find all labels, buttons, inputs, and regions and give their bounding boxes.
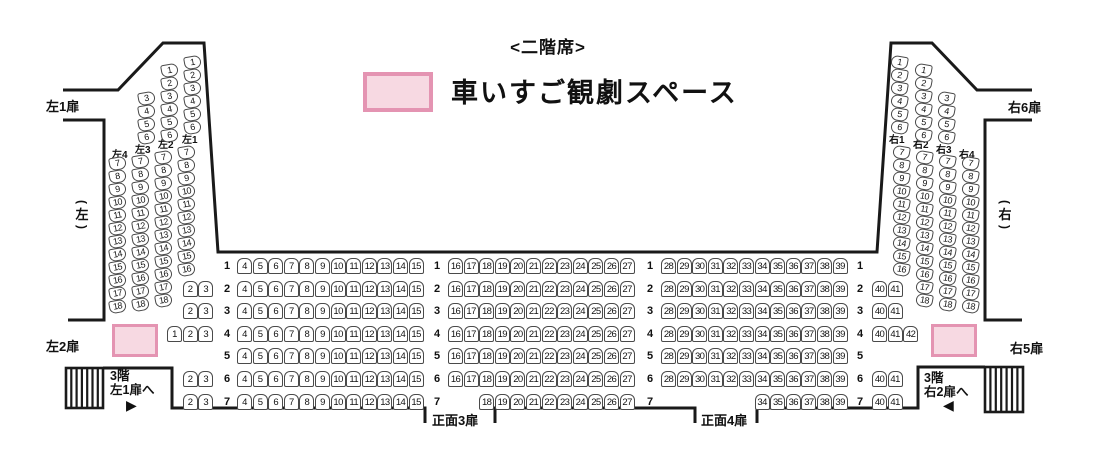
seat: 22	[542, 326, 557, 342]
seat: 9	[315, 348, 330, 364]
seat: 19	[495, 303, 510, 319]
seat: 8	[299, 258, 314, 274]
seat: 14	[393, 371, 408, 387]
seat: 34	[755, 394, 770, 410]
seat: 40	[872, 281, 887, 297]
seat: 41	[888, 326, 903, 342]
row-number: 3	[430, 305, 444, 317]
seat: 26	[604, 371, 619, 387]
seat: 33	[739, 258, 754, 274]
seat: 18	[479, 371, 494, 387]
row-number: 7	[853, 396, 867, 408]
seat: 21	[526, 281, 541, 297]
seat: 34	[755, 371, 770, 387]
seat: 13	[377, 348, 392, 364]
seat: 14	[393, 394, 408, 410]
seat: 11	[346, 258, 361, 274]
seat: 15	[409, 281, 424, 297]
seat: 34	[755, 348, 770, 364]
door-label-left1: 左1扉	[46, 96, 79, 115]
row-number: 6	[430, 373, 444, 385]
seat: 23	[557, 303, 572, 319]
seat: 37	[801, 394, 816, 410]
seat: 33	[739, 303, 754, 319]
row-number: 5	[220, 350, 234, 362]
seat: 16	[448, 371, 463, 387]
seat: 9	[315, 281, 330, 297]
seat: 22	[542, 258, 557, 274]
seat: 8	[299, 371, 314, 387]
seat: 28	[661, 303, 676, 319]
seat: 11	[346, 281, 361, 297]
seat: 29	[677, 326, 692, 342]
seat: 15	[409, 258, 424, 274]
seat: 17	[464, 326, 479, 342]
seat: 3	[198, 394, 213, 410]
seat: 27	[620, 371, 635, 387]
seat: 27	[620, 326, 635, 342]
seat: 7	[284, 326, 299, 342]
seat: 35	[770, 348, 785, 364]
seat: 6	[268, 326, 283, 342]
seat: 13	[377, 281, 392, 297]
door-label-front3: 正面3扉	[432, 410, 478, 429]
seat: 25	[588, 394, 603, 410]
seat: 37	[801, 258, 816, 274]
side-label-right: (右)	[997, 196, 1013, 233]
seat: 13	[377, 303, 392, 319]
seat: 39	[833, 371, 848, 387]
seat: 5	[253, 394, 268, 410]
seat: 16	[448, 258, 463, 274]
seat: 38	[817, 258, 832, 274]
seat: 36	[786, 326, 801, 342]
seat: 9	[315, 326, 330, 342]
seat: 6	[268, 281, 283, 297]
seat: 18	[479, 348, 494, 364]
seat: 11	[346, 303, 361, 319]
seat: 9	[315, 371, 330, 387]
seat: 7	[284, 281, 299, 297]
seat: 24	[573, 258, 588, 274]
seat: 8	[299, 303, 314, 319]
seat: 39	[833, 258, 848, 274]
seat: 40	[872, 371, 887, 387]
seat: 14	[393, 281, 408, 297]
row-number: 4	[643, 328, 657, 340]
seat: 13	[377, 394, 392, 410]
legend-wheelchair-swatch	[363, 72, 433, 112]
seat: 12	[362, 394, 377, 410]
seat: 19	[495, 281, 510, 297]
row-number: 4	[220, 328, 234, 340]
seat: 36	[786, 281, 801, 297]
seat: 40	[872, 326, 887, 342]
seat: 30	[692, 348, 707, 364]
door-label-right6: 右6扉	[1008, 97, 1041, 116]
seat: 33	[739, 326, 754, 342]
seat: 38	[817, 371, 832, 387]
row-number: 4	[430, 328, 444, 340]
seat: 23	[557, 326, 572, 342]
seat: 6	[268, 371, 283, 387]
stairs-right-icon	[985, 367, 1023, 412]
seating-chart: <二階席> 車いすご観劇スペース 左1扉 左2扉 右6扉 右5扉 正面3扉 正面…	[0, 0, 1100, 463]
seat: 37	[801, 348, 816, 364]
seat: 16	[448, 326, 463, 342]
seat: 25	[588, 326, 603, 342]
seat: 4	[237, 394, 252, 410]
seat: 26	[604, 326, 619, 342]
seat: 19	[495, 348, 510, 364]
door-label-left2: 左2扉	[46, 336, 79, 355]
row-number: 2	[853, 283, 867, 295]
seat: 20	[510, 303, 525, 319]
row-number: 6	[643, 373, 657, 385]
arrow-right-icon: ▶	[126, 398, 137, 412]
seat: 15	[409, 371, 424, 387]
seat: 35	[770, 303, 785, 319]
seat: 34	[755, 326, 770, 342]
seat: 21	[526, 303, 541, 319]
seat: 25	[588, 281, 603, 297]
seat: 27	[620, 281, 635, 297]
seat: 36	[786, 394, 801, 410]
seat: 12	[362, 258, 377, 274]
seat: 33	[739, 348, 754, 364]
seat: 10	[331, 326, 346, 342]
seat: 8	[299, 394, 314, 410]
seat: 29	[677, 371, 692, 387]
seat: 14	[393, 326, 408, 342]
seat: 38	[817, 303, 832, 319]
seat: 21	[526, 394, 541, 410]
seat: 33	[739, 281, 754, 297]
arrow-left-icon: ◀	[943, 398, 954, 412]
row-number: 7	[430, 396, 444, 408]
seat: 8	[299, 326, 314, 342]
seat: 12	[362, 303, 377, 319]
seat: 7	[284, 258, 299, 274]
row-number: 3	[853, 305, 867, 317]
seat: 26	[604, 303, 619, 319]
seat: 18	[479, 326, 494, 342]
seat: 3	[198, 281, 213, 297]
seat: 22	[542, 371, 557, 387]
row-number: 1	[853, 260, 867, 272]
seat: 8	[299, 348, 314, 364]
seat: 39	[833, 394, 848, 410]
seat: 17	[464, 303, 479, 319]
seat: 39	[833, 303, 848, 319]
seat: 24	[573, 303, 588, 319]
seat: 15	[409, 348, 424, 364]
seat: 14	[393, 348, 408, 364]
seat: 29	[677, 258, 692, 274]
seat: 31	[708, 326, 723, 342]
seat: 24	[573, 281, 588, 297]
seat: 10	[331, 394, 346, 410]
seat: 12	[362, 371, 377, 387]
seat: 14	[393, 258, 408, 274]
seat: 18	[479, 394, 494, 410]
seat: 34	[755, 258, 770, 274]
seat: 5	[253, 303, 268, 319]
seat: 19	[495, 371, 510, 387]
seat: 5	[253, 258, 268, 274]
seat: 14	[393, 303, 408, 319]
seat: 26	[604, 394, 619, 410]
side-label-left: (左)	[74, 196, 90, 233]
seat: 16	[448, 281, 463, 297]
seat: 7	[284, 348, 299, 364]
row-number: 4	[853, 328, 867, 340]
seat: 31	[708, 258, 723, 274]
seat: 10	[331, 371, 346, 387]
seat: 22	[542, 281, 557, 297]
seat: 41	[888, 281, 903, 297]
row-number: 6	[220, 373, 234, 385]
seat: 28	[661, 326, 676, 342]
seat: 30	[692, 371, 707, 387]
seat: 7	[284, 394, 299, 410]
row-number: 5	[643, 350, 657, 362]
seat: 2	[183, 281, 198, 297]
seat: 41	[888, 303, 903, 319]
seat: 34	[755, 303, 770, 319]
seat: 25	[588, 303, 603, 319]
seat: 35	[770, 394, 785, 410]
seat: 37	[801, 371, 816, 387]
seat: 26	[604, 348, 619, 364]
seat: 25	[588, 258, 603, 274]
seat: 29	[677, 303, 692, 319]
seat: 34	[755, 281, 770, 297]
seat: 41	[888, 394, 903, 410]
seat: 39	[833, 281, 848, 297]
seat: 7	[284, 371, 299, 387]
seat: 20	[510, 281, 525, 297]
seat: 9	[315, 303, 330, 319]
seat: 22	[542, 303, 557, 319]
row-number: 3	[220, 305, 234, 317]
seat: 26	[604, 258, 619, 274]
seat: 32	[723, 326, 738, 342]
seat: 9	[315, 258, 330, 274]
seat: 31	[708, 371, 723, 387]
seat: 12	[362, 281, 377, 297]
seat: 6	[268, 258, 283, 274]
seat: 20	[510, 394, 525, 410]
seat: 36	[786, 348, 801, 364]
seat: 16	[448, 348, 463, 364]
seat: 32	[723, 371, 738, 387]
seat: 17	[464, 348, 479, 364]
seat: 10	[331, 281, 346, 297]
seat: 24	[573, 371, 588, 387]
seat: 26	[604, 281, 619, 297]
seat: 35	[770, 281, 785, 297]
stairs-left-text: 3階 左1扉へ	[110, 369, 154, 398]
seat: 5	[253, 326, 268, 342]
seat: 23	[557, 394, 572, 410]
seat: 30	[692, 281, 707, 297]
seat: 42	[903, 326, 918, 342]
seat: 28	[661, 371, 676, 387]
seat: 4	[237, 348, 252, 364]
stairs-right-text: 3階 右2扉へ	[924, 371, 968, 400]
seat: 31	[708, 303, 723, 319]
seat: 4	[237, 303, 252, 319]
seat: 24	[573, 326, 588, 342]
seat: 31	[708, 281, 723, 297]
seat: 3	[198, 326, 213, 342]
seat: 29	[677, 348, 692, 364]
seat: 4	[237, 371, 252, 387]
seat: 5	[253, 348, 268, 364]
seat: 31	[708, 348, 723, 364]
row-number: 3	[643, 305, 657, 317]
wheelchair-space-left	[112, 324, 158, 357]
seat: 15	[409, 303, 424, 319]
row-number: 5	[430, 350, 444, 362]
seat: 6	[268, 394, 283, 410]
seat: 23	[557, 371, 572, 387]
seat: 13	[377, 258, 392, 274]
seat: 16	[448, 303, 463, 319]
seat: 32	[723, 258, 738, 274]
seat: 21	[526, 348, 541, 364]
seat: 11	[346, 348, 361, 364]
seat: 28	[661, 348, 676, 364]
seat: 17	[464, 281, 479, 297]
seat: 8	[299, 281, 314, 297]
seat: 4	[237, 258, 252, 274]
seat: 35	[770, 258, 785, 274]
seat: 28	[661, 258, 676, 274]
seat: 28	[661, 281, 676, 297]
legend-wheelchair-label: 車いすご観劇スペース	[451, 71, 738, 110]
seat: 24	[573, 348, 588, 364]
seat: 33	[739, 371, 754, 387]
seat: 20	[510, 326, 525, 342]
seat: 37	[801, 281, 816, 297]
row-number: 1	[643, 260, 657, 272]
seat: 38	[817, 394, 832, 410]
seat: 36	[786, 371, 801, 387]
seat: 20	[510, 371, 525, 387]
page-title: <二階席>	[448, 33, 648, 58]
seat: 17	[464, 371, 479, 387]
seat: 35	[770, 326, 785, 342]
seat: 6	[268, 303, 283, 319]
seat: 15	[409, 326, 424, 342]
seat: 38	[817, 348, 832, 364]
seat: 20	[510, 348, 525, 364]
seat: 10	[331, 303, 346, 319]
seat: 13	[377, 326, 392, 342]
seat: 37	[801, 326, 816, 342]
seat: 40	[872, 394, 887, 410]
seat: 19	[495, 394, 510, 410]
seat: 20	[510, 258, 525, 274]
seat: 15	[409, 394, 424, 410]
seat: 11	[346, 394, 361, 410]
seat: 10	[331, 348, 346, 364]
row-number: 2	[643, 283, 657, 295]
seat: 38	[817, 281, 832, 297]
seat: 32	[723, 281, 738, 297]
seat: 25	[588, 371, 603, 387]
seat: 1	[167, 326, 182, 342]
seat: 36	[786, 303, 801, 319]
seat: 40	[872, 303, 887, 319]
seat: 30	[692, 303, 707, 319]
row-number: 1	[430, 260, 444, 272]
seat: 25	[588, 348, 603, 364]
seat: 27	[620, 348, 635, 364]
seat: 2	[183, 371, 198, 387]
seat: 23	[557, 348, 572, 364]
seat: 27	[620, 258, 635, 274]
seat: 17	[464, 258, 479, 274]
row-number: 1	[220, 260, 234, 272]
seat: 36	[786, 258, 801, 274]
seat: 10	[331, 258, 346, 274]
seat: 32	[723, 348, 738, 364]
row-number: 2	[220, 283, 234, 295]
seat: 2	[183, 326, 198, 342]
seat: 23	[557, 281, 572, 297]
seat: 23	[557, 258, 572, 274]
seat: 4	[237, 326, 252, 342]
seat: 4	[237, 281, 252, 297]
seat: 5	[253, 371, 268, 387]
row-number: 7	[643, 396, 657, 408]
seat: 30	[692, 258, 707, 274]
stairs-left-icon	[66, 368, 103, 408]
wheelchair-space-right	[931, 324, 977, 357]
seat: 9	[315, 394, 330, 410]
seat: 2	[183, 303, 198, 319]
seat: 41	[888, 371, 903, 387]
seat: 18	[479, 258, 494, 274]
seat: 30	[692, 326, 707, 342]
seat: 6	[268, 348, 283, 364]
seat: 29	[677, 281, 692, 297]
door-label-right5: 右5扉	[1010, 338, 1043, 357]
seat: 22	[542, 394, 557, 410]
seat: 13	[377, 371, 392, 387]
seat: 2	[183, 394, 198, 410]
seat: 39	[833, 348, 848, 364]
seat: 7	[284, 303, 299, 319]
seat: 19	[495, 326, 510, 342]
seat: 39	[833, 326, 848, 342]
seat: 19	[495, 258, 510, 274]
door-label-front4: 正面4扉	[701, 410, 747, 429]
seat: 32	[723, 303, 738, 319]
seat: 22	[542, 348, 557, 364]
seat: 35	[770, 371, 785, 387]
row-number: 7	[220, 396, 234, 408]
seat: 27	[620, 394, 635, 410]
seat: 27	[620, 303, 635, 319]
seat: 37	[801, 303, 816, 319]
seat: 12	[362, 326, 377, 342]
row-number: 5	[853, 350, 867, 362]
seat: 12	[362, 348, 377, 364]
